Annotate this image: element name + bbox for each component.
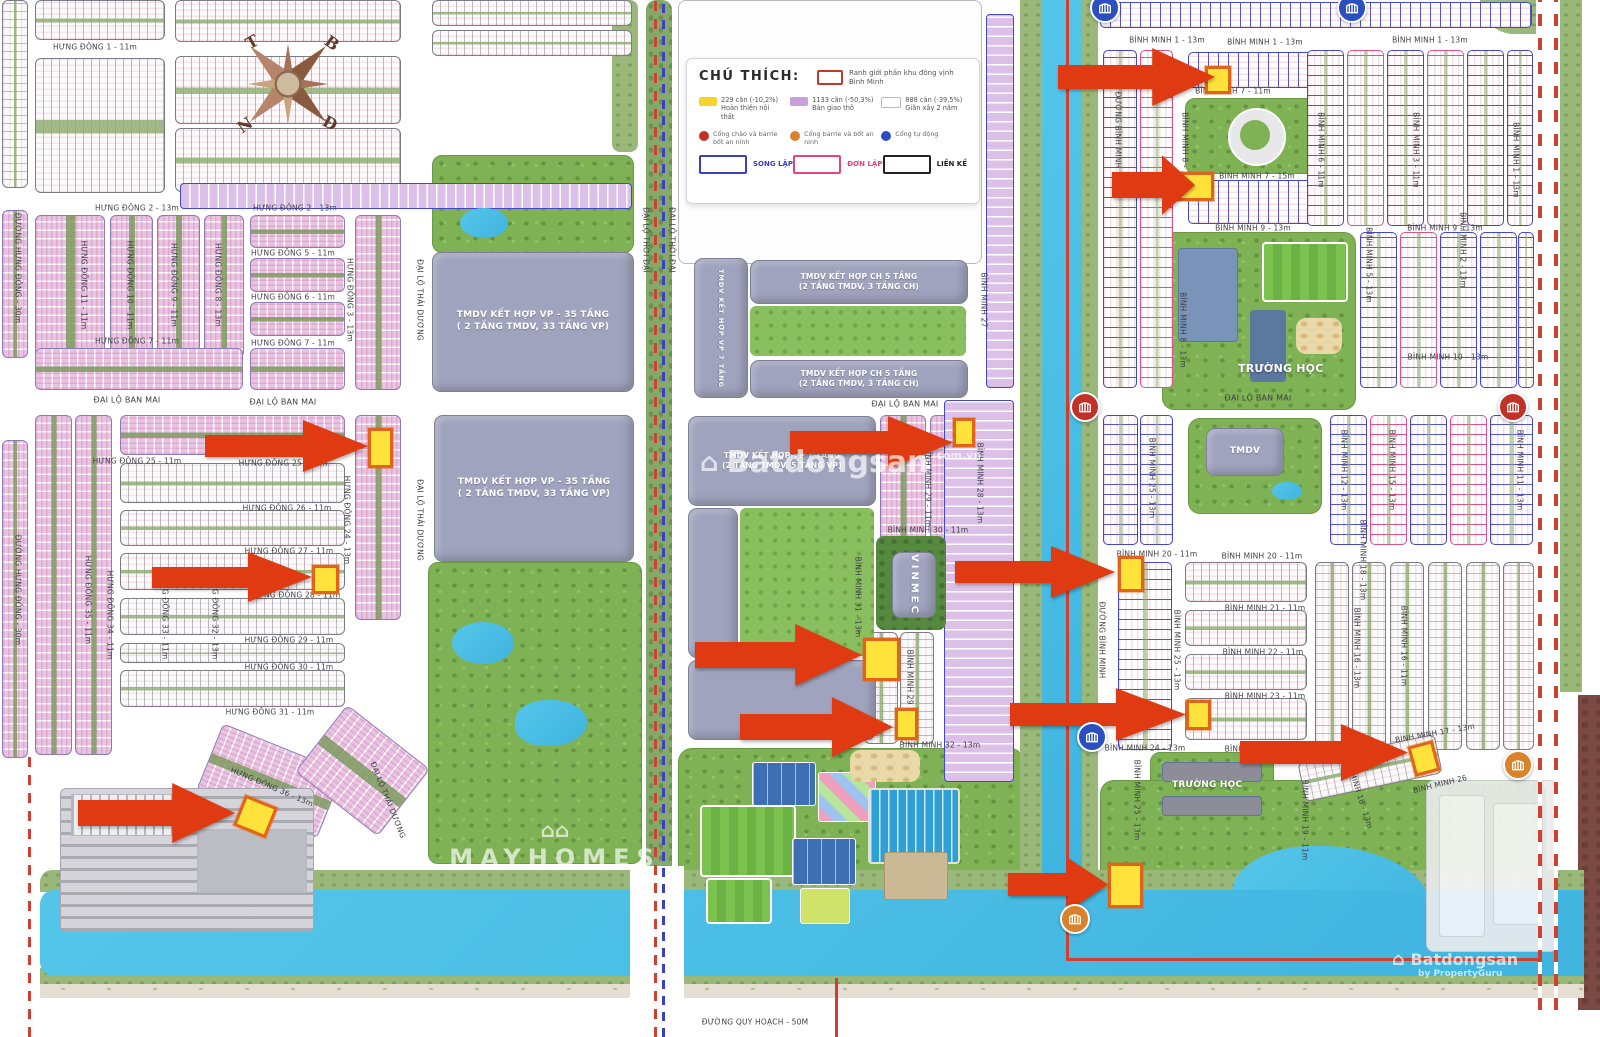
lot-block xyxy=(1428,562,1462,750)
building-label: TMDV xyxy=(1230,446,1260,458)
street-label: BÌNH MINH 21 - 11m xyxy=(1225,604,1306,613)
street-label: BÌNH MINH 9 - 13m xyxy=(1407,224,1483,233)
lot-block xyxy=(1400,232,1437,388)
soccer-field xyxy=(706,878,772,924)
building-label: TMDV KẾT HỢP CH 5 TẦNG xyxy=(801,369,918,379)
green-strip xyxy=(1560,0,1582,692)
lot-block xyxy=(432,30,632,56)
lot-block xyxy=(35,348,243,390)
lot-block xyxy=(250,302,345,336)
pointer-arrow xyxy=(78,783,235,843)
gate-icon xyxy=(1077,722,1107,752)
watermark-mayhomes: ⌂⌂ MAYHOMES xyxy=(440,818,670,872)
yellow-swatch xyxy=(699,97,717,106)
lot-block xyxy=(1490,415,1533,545)
street-label: HƯNG ĐÔNG 8 - 13m xyxy=(214,243,223,327)
lot-block xyxy=(1518,232,1534,388)
street-label: ĐƯỜNG QUY HOẠCH - 50M xyxy=(702,1018,809,1027)
lot-block xyxy=(1185,610,1307,646)
street-label: HƯNG ĐÔNG 1 - 11m xyxy=(53,43,137,52)
lot-block xyxy=(1100,2,1532,28)
street-label: HƯNG ĐÔNG 34 - 11m xyxy=(106,571,115,660)
street-label: ĐẠI LỘ THÁI DƯƠNG xyxy=(416,259,425,341)
mini-court xyxy=(800,888,850,924)
street-label: BÌNH MINH 7 - 15m xyxy=(1219,172,1295,181)
street-label: HƯNG ĐÔNG 7 - 11m xyxy=(95,337,179,346)
arrow-head xyxy=(1162,155,1195,215)
street-label: BÌNH MINH 8 - 13m xyxy=(1179,292,1188,368)
watermark-batdongsan-small: ⌂ Batdongsan by PropertyGuru xyxy=(1392,950,1518,979)
arrow-head xyxy=(172,783,235,843)
gate-icon xyxy=(1060,904,1090,934)
building-label: (2 TẦNG TMDV, 3 TẦNG CH) xyxy=(799,379,919,389)
building-label: ( 2 TẦNG TMDV, 33 TẦNG VP) xyxy=(458,489,610,501)
watermark-batdongsan: ⌂ Batdongsan com.vn xyxy=(700,445,981,480)
street-label: BÌNH MINH 25 - 13m xyxy=(1148,438,1157,519)
street-label: HƯNG ĐÔNG 10 - 11m xyxy=(126,241,135,330)
building-tmdv-vp35: TMDV KẾT HỢP VP - 35 TẦNG ( 2 TẦNG TMDV,… xyxy=(432,252,634,392)
canal-bank xyxy=(1082,0,1098,890)
lot-block xyxy=(35,415,72,755)
lot-block xyxy=(120,598,345,635)
arrow-tail xyxy=(152,567,258,588)
street-label: HƯNG ĐÔNG 6 - 11m xyxy=(251,293,335,302)
street-label: HƯNG ĐÔNG 30 - 11m xyxy=(245,663,334,672)
street-label: BÌNH MINH 1 - 13m xyxy=(1129,36,1205,45)
lot-block xyxy=(250,258,345,292)
street-label: ĐẠI LỘ BAN MAI xyxy=(94,396,161,405)
street-label: BÌNH MINH 25 - 13m xyxy=(1133,760,1142,841)
gate-icon xyxy=(1503,750,1533,780)
tennis-courts xyxy=(792,838,856,885)
legend-gate-blue: Cổng tự động xyxy=(881,130,967,146)
park-lawn xyxy=(1240,120,1270,150)
arrow-head xyxy=(832,697,893,757)
legend-type-songlap: SONG LẬP xyxy=(699,155,793,174)
pointer-arrow xyxy=(1008,858,1108,911)
orange-gate-icon xyxy=(790,131,800,141)
street-label: BÌNH MINH 9 - 13m xyxy=(1215,224,1291,233)
street-label: BÌNH MINH 16 - 13m xyxy=(1353,608,1362,689)
pointer-arrow xyxy=(1240,724,1408,781)
batdongsan-logo-icon: ⌂ xyxy=(1392,949,1405,970)
street-label: BÌNH MINH 20 - 11m xyxy=(1222,552,1303,561)
legend-type-donlap: ĐƠN LẬP xyxy=(793,155,882,174)
highlighted-lot xyxy=(1186,700,1211,730)
white-swatch xyxy=(881,97,901,108)
pointer-arrow xyxy=(955,546,1115,598)
school-building xyxy=(1162,796,1262,816)
street-label: BÌNH MINH 23 - 11m xyxy=(1225,692,1306,701)
pond xyxy=(460,208,508,238)
gate-glyph xyxy=(1344,0,1360,16)
arrow-tail xyxy=(740,714,841,739)
lot-block xyxy=(1410,415,1447,545)
lot-block xyxy=(120,670,345,707)
street-label: BÌNH MINH 24 - 13m xyxy=(1105,744,1186,753)
street-label: BÌNH MINH 6 - 11m xyxy=(1317,112,1326,188)
pointer-arrow xyxy=(740,697,893,757)
lot-block xyxy=(1427,50,1464,226)
boulevard-crossing xyxy=(630,866,684,1010)
legend-gate-orange: Cổng barrie và bốt an ninh xyxy=(790,130,876,146)
pond xyxy=(1272,482,1302,500)
lot-block xyxy=(1467,50,1504,226)
arrow-tail xyxy=(205,435,313,457)
lot-block xyxy=(2,0,28,188)
street-label: BÌNH MINH 1 - 13m xyxy=(1512,122,1521,198)
vinmec-label: VINMEC xyxy=(909,554,920,616)
lot-block xyxy=(204,215,244,358)
boundary-line xyxy=(1066,0,1069,958)
street-label: HƯNG ĐÔNG 24 - 13m xyxy=(343,476,352,565)
boundary-line-dashed xyxy=(654,0,657,1037)
zone-line-dashed xyxy=(662,0,665,1037)
street-label: BÌNH MINH 27 xyxy=(980,272,989,327)
street-label: BÌNH MINH 5 - 13m xyxy=(1365,227,1374,303)
street-label: BÌNH MINH 30 - 11m xyxy=(888,526,969,535)
street-label: BÌNH MINH 10 - 13m xyxy=(1408,353,1489,362)
highlighted-lot xyxy=(953,418,975,447)
boundary-line-dashed xyxy=(28,752,31,1037)
lot-block xyxy=(1503,562,1534,750)
master-plan-map: TMDV KẾT HỢP VP - 35 TẦNG ( 2 TẦNG TMDV,… xyxy=(0,0,1600,1037)
pond xyxy=(452,622,514,664)
red-gate-icon xyxy=(699,131,709,141)
arrow-head xyxy=(1051,546,1115,598)
street-label: HƯNG ĐÔNG 11 - 11m xyxy=(80,241,89,330)
boundary-stripe xyxy=(1538,0,1542,1010)
canal-bank xyxy=(1020,0,1042,890)
highlighted-lot xyxy=(312,565,339,594)
school-label: TRƯỜNG HỌC xyxy=(1172,780,1242,790)
lot-block xyxy=(1347,50,1384,226)
lot-block xyxy=(180,183,632,209)
lot-block xyxy=(1185,654,1307,690)
lot-block xyxy=(1103,415,1138,545)
street-label: BÌNH MINH 15 - 13m xyxy=(1388,430,1397,511)
building-label: TMDV KẾT HỢP VP 7 TẦNG xyxy=(717,269,725,388)
arrow-tail xyxy=(1008,873,1074,895)
street-label: HƯNG ĐÔNG 25 - 11m xyxy=(93,457,182,466)
boundary-label: Ranh giới phân khu đông vịnh Bình Minh xyxy=(849,69,967,88)
legend-item-white: 888 căn (-39,5%)Giãn xây 2 năm xyxy=(881,96,967,122)
legend-gate-red: Cổng chào và barrie bốt an ninh xyxy=(699,130,785,146)
building-tmdv-ch5: TMDV KẾT HỢP CH 5 TẦNG (2 TẦNG TMDV, 3 T… xyxy=(750,260,968,304)
lot-block xyxy=(355,215,401,390)
street-label: BÌNH MINH 11 - 13m xyxy=(1516,430,1525,511)
street-label: BÌNH MINH 19 - 11m xyxy=(1301,780,1310,861)
street-label: HƯNG ĐÔNG 26 - 11m xyxy=(243,504,332,513)
gate-icon xyxy=(1498,392,1528,422)
highlighted-lot xyxy=(368,428,393,468)
arrow-head xyxy=(1116,688,1186,741)
street-label: ĐƯỜNG HƯNG ĐÔNG - 30m xyxy=(14,213,23,323)
lot-block xyxy=(120,510,345,546)
street-label: ĐƯỜNG BÌNH MINH xyxy=(1098,602,1107,679)
street-label: BÌNH MINH 25 - 13m xyxy=(1173,610,1182,691)
lot-block xyxy=(250,215,345,248)
building-label: (2 TẦNG TMDV, 3 TẦNG CH) xyxy=(799,282,919,292)
lot-block xyxy=(250,348,345,390)
arrow-head xyxy=(795,624,862,686)
lot-block xyxy=(35,58,165,193)
boundary-stripe xyxy=(1554,0,1558,1010)
batdongsan-logo-icon: ⌂ xyxy=(700,450,719,476)
street-label: HƯNG ĐÔNG 3 - 13m xyxy=(346,258,355,342)
purple-swatch xyxy=(790,97,808,106)
lot-block xyxy=(35,0,165,40)
arrow-tail xyxy=(1240,741,1351,765)
street-label: HƯNG ĐÔNG 2 - 13m xyxy=(95,204,179,213)
highlighted-lot xyxy=(895,708,918,740)
street-label: BÌNH MINH 12 - 13m xyxy=(1340,430,1349,511)
boundary-swatch xyxy=(817,70,843,85)
building-label: TMDV KẾT HỢP CH 5 TẦNG xyxy=(801,272,918,282)
donlap-swatch xyxy=(793,155,841,174)
building-tmdv-vp7: TMDV KẾT HỢP VP 7 TẦNG xyxy=(694,258,748,398)
street-label: BÌNH MINH 32 - 13m xyxy=(900,741,981,750)
pointer-arrow xyxy=(152,552,312,602)
arrow-tail xyxy=(78,800,182,825)
boundary-line xyxy=(835,978,838,1037)
street-label: ĐẠI LỘ THÁI DƯƠNG xyxy=(416,479,425,561)
street-label: HƯNG ĐÔNG 2 - 13m xyxy=(253,204,337,213)
street-label: ĐẠI LỘ BAN MAI xyxy=(872,400,939,409)
lot-block xyxy=(120,643,345,663)
street-label: HƯNG ĐÔNG 35 - 11m xyxy=(84,556,93,645)
street-label: BÌNH MINH 16 - 11m xyxy=(1400,606,1409,687)
street-label: BÌNH MINH 3 - 11m xyxy=(1412,112,1421,188)
soccer-field xyxy=(700,805,796,877)
legend-item-purple: 1133 căn (-50,3%)Bàn giao thô xyxy=(790,96,876,122)
street-label: ĐẠI LỘ THỜI ĐẠI xyxy=(642,207,651,273)
arrow-head xyxy=(1341,724,1408,781)
boulevard-median xyxy=(646,0,672,882)
building-vinmec: VINMEC xyxy=(892,552,936,618)
building-label: TMDV KẾT HỢP VP - 35 TẦNG xyxy=(457,310,609,322)
pointer-arrow xyxy=(1112,155,1195,215)
street-label: BÌNH MINH 1 - 13m xyxy=(1227,38,1303,47)
lot-block xyxy=(1480,232,1517,388)
arrow-tail xyxy=(1112,172,1167,197)
arrow-head xyxy=(1152,48,1215,106)
street-label: HƯNG ĐÔNG 31 - 11m xyxy=(226,708,315,717)
gate-icon xyxy=(1070,392,1100,422)
lot-block xyxy=(1315,562,1349,750)
canal xyxy=(1042,0,1082,890)
street-label: BÌNH MINH 1 - 13m xyxy=(1392,36,1468,45)
arrow-tail xyxy=(695,642,805,668)
gate-glyph xyxy=(1505,399,1521,415)
gate-glyph xyxy=(1097,0,1113,16)
legend-type-lienke: LIỀN KỀ xyxy=(883,155,967,174)
blue-gate-icon xyxy=(881,131,891,141)
legend-title: CHÚ THÍCH: xyxy=(699,69,800,84)
school-label: TRƯỜNG HỌC xyxy=(1238,362,1323,375)
mayhomes-logo-icon: ⌂⌂ xyxy=(440,818,670,842)
school-court xyxy=(1296,318,1342,354)
gate-glyph xyxy=(1510,757,1526,773)
building-tmdv: TMDV xyxy=(1206,428,1284,476)
gate-glyph xyxy=(1084,729,1100,745)
lot-block xyxy=(1450,415,1487,545)
street-label: HƯNG ĐÔNG 9 - 11m xyxy=(170,243,179,327)
gate-glyph xyxy=(1067,911,1083,927)
street-label: ĐẠI LỘ BAN MAI xyxy=(250,398,317,407)
gate-glyph xyxy=(1077,399,1093,415)
street-label: ĐẠI LỘ BAN MAI xyxy=(1225,394,1292,403)
legend: CHÚ THÍCH: Ranh giới phân khu đông vịnh … xyxy=(686,58,980,204)
street-label: ĐƯỜNG HƯNG ĐÔNG - 30m xyxy=(14,535,23,645)
songlap-swatch xyxy=(699,155,747,174)
arrow-tail xyxy=(1010,703,1126,725)
arrow-tail xyxy=(1058,65,1162,89)
legend-item-yellow: 229 căn (-10,2%)Hoàn thiện nội thất xyxy=(699,96,785,122)
building-tmdv-vp35: TMDV KẾT HỢP VP - 35 TẦNG ( 2 TẦNG TMDV,… xyxy=(434,415,634,562)
street-label: BÌNH MINH 18 - 13m xyxy=(1359,520,1368,601)
arrow-head xyxy=(303,420,368,472)
building-tmdv-ch5: TMDV KẾT HỢP CH 5 TẦNG (2 TẦNG TMDV, 3 T… xyxy=(750,360,968,398)
school-field xyxy=(1262,242,1348,302)
highlighted-lot xyxy=(1108,863,1143,908)
pointer-arrow xyxy=(1058,48,1215,106)
lot-block xyxy=(1140,415,1173,545)
pointer-arrow xyxy=(695,624,862,686)
lienke-swatch xyxy=(883,155,931,174)
lot-block xyxy=(1185,562,1307,602)
street-label: HƯNG ĐÔNG 29 - 11m xyxy=(245,636,334,645)
pool-building xyxy=(884,852,948,900)
courtyard xyxy=(750,306,966,356)
lot-block xyxy=(1307,50,1344,226)
street-label: HƯNG ĐÔNG 7 - 11m xyxy=(251,339,335,348)
street-label: BÌNH MINH 22 - 11m xyxy=(1223,648,1304,657)
building-label: ( 2 TẦNG TMDV, 33 TẦNG VP) xyxy=(457,322,609,334)
street-label: HƯNG ĐÔNG 5 - 11m xyxy=(251,249,335,258)
pointer-arrow xyxy=(205,420,368,472)
street-label: ĐẠI LỘ THỜI ĐẠI xyxy=(668,207,677,273)
highlighted-lot xyxy=(1118,556,1144,592)
building-label: TMDV KẾT HỢP VP - 35 TẦNG xyxy=(458,477,610,489)
perimeter-road xyxy=(40,984,1584,998)
tennis-courts xyxy=(752,762,816,806)
arrow-head xyxy=(248,552,312,602)
lot-block xyxy=(432,0,632,26)
highlighted-lot xyxy=(863,638,900,681)
street-label: BÌNH MINH 2 - 13m xyxy=(1459,212,1468,288)
arrow-tail xyxy=(955,561,1061,583)
lot-block xyxy=(986,14,1014,388)
